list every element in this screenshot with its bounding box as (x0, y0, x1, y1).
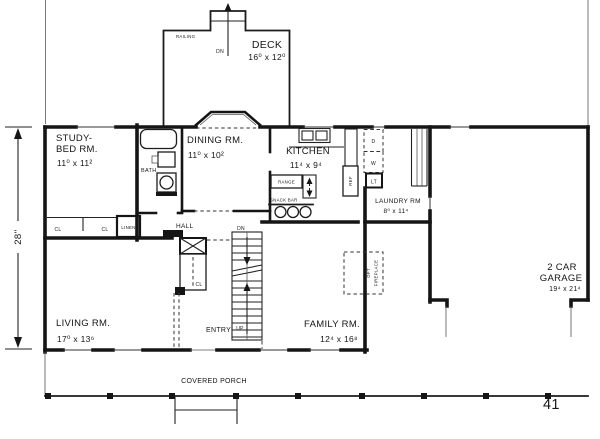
family-label: FAMILY RM. (304, 319, 360, 330)
porch-post (169, 393, 175, 399)
laundry-tub-label: LT (371, 180, 377, 186)
dining-dims: 11⁰ x 10² (188, 150, 224, 160)
fireplace-label-2: FIREPLACE (374, 260, 379, 287)
bath-sink (158, 152, 175, 167)
laundry-dims: 8⁰ x 11⁴ (383, 208, 408, 215)
page-number: 41 (543, 397, 560, 413)
family-dims: 12⁴ x 16⁸ (320, 334, 358, 344)
porch-post (359, 393, 365, 399)
floor-plan-page: 28'' DN RAILING DECK 16⁰ x 12⁰ (0, 0, 600, 439)
closet-right-label: CL (102, 227, 109, 233)
stool (300, 207, 311, 218)
hall-label: HALL (176, 223, 194, 230)
cased-openings (174, 293, 179, 348)
reference-lines (46, 0, 589, 126)
left-dimension: 28'' (5, 127, 32, 349)
bay-window (196, 112, 260, 125)
fireplace-label-1: OPT (366, 268, 371, 278)
hall-wall-stub (163, 230, 183, 237)
stool (288, 207, 299, 218)
kitchen-dims: 11⁴ x 9⁴ (290, 160, 322, 170)
hall-and-closets: CL CL LINEN HALL CL (47, 216, 231, 295)
entry-steps (175, 397, 237, 424)
washer-label: W (371, 161, 376, 167)
staircase: DN UP (232, 226, 262, 349)
covered-porch: COVERED PORCH (45, 352, 588, 424)
stool (275, 207, 286, 218)
study-dims: 11⁰ x 11² (57, 158, 93, 168)
range-label: RANGE (278, 180, 295, 185)
closet-left-label: CL (55, 227, 62, 233)
garage-label-1: 2 CAR (547, 262, 576, 273)
snack-bar-label: SNACK BAR (270, 198, 298, 203)
porch-post (295, 393, 301, 399)
living-label: LIVING RM. (56, 318, 110, 329)
deck-railing-label: RAILING (176, 34, 196, 39)
garage-dims: 19⁴ x 21⁴ (549, 286, 581, 293)
laundry-room: D W LT LAUNDRY RM 8⁰ x 11⁴ (364, 129, 427, 215)
garage-label-2: GARAGE (540, 273, 582, 284)
entry-closet-label: CL (196, 282, 203, 288)
porch-post (233, 393, 239, 399)
entry-label: ENTRY (206, 327, 231, 334)
stairs-down-label: DN (237, 226, 245, 232)
porch-post (421, 393, 427, 399)
study-label-1: STUDY- (56, 133, 92, 144)
laundry-label: LAUNDRY RM (375, 198, 421, 205)
linen-label: LINEN (121, 225, 135, 230)
study-label-2: BED RM. (56, 144, 98, 155)
porch-post (107, 393, 113, 399)
dimension-label: 28'' (13, 229, 24, 244)
porch-label: COVERED PORCH (181, 378, 247, 385)
dryer-label: D (372, 139, 376, 145)
floor-plan-drawing: 28'' DN RAILING DECK 16⁰ x 12⁰ (0, 0, 600, 439)
refrigerator-label: REF (348, 176, 353, 186)
deck-dims: 16⁰ x 12⁰ (248, 52, 286, 62)
bath-label: BATH (141, 168, 156, 174)
deck: DN RAILING DECK 16⁰ x 12⁰ (164, 3, 290, 128)
kitchen-label: KITCHEN (286, 146, 330, 157)
kitchen: REF RANGE SNACK BAR KITCHEN 11⁴ x 9⁴ (269, 129, 358, 218)
dining-label: DINING RM. (187, 135, 243, 146)
porch-post (483, 393, 489, 399)
stairs-up-label: UP (236, 326, 244, 332)
porch-post (45, 393, 51, 399)
bathtub (141, 130, 177, 149)
deck-label: DECK (252, 39, 282, 51)
living-dims: 17⁰ x 13⁶ (57, 334, 95, 344)
dining-room: DINING RM. 11⁰ x 10² (187, 135, 243, 160)
kitchen-counter (345, 129, 357, 166)
bathroom: BATH (141, 130, 178, 197)
study-bedroom: STUDY- BED RM. 11⁰ x 11² (56, 133, 98, 168)
deck-down-label: DN (216, 49, 224, 55)
